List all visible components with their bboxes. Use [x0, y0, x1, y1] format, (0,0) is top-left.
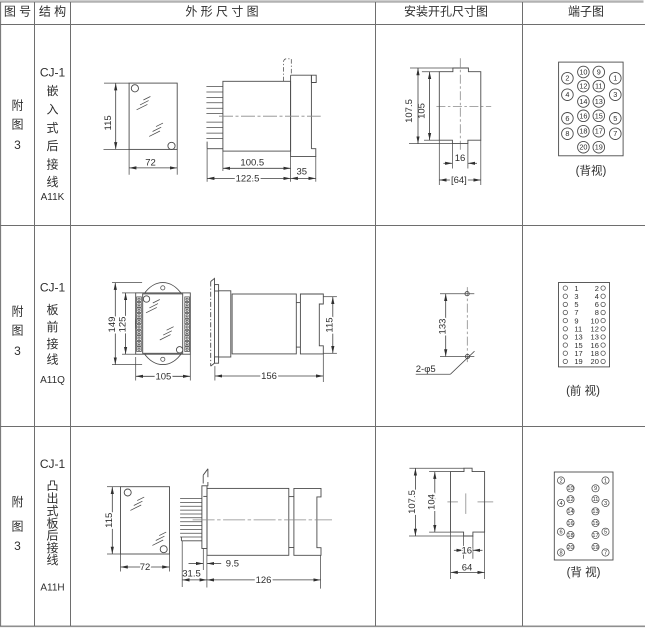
- svg-text:17: 17: [592, 533, 598, 539]
- svg-text:附: 附: [11, 495, 23, 509]
- svg-text:板: 板: [46, 303, 58, 317]
- svg-text:31.5: 31.5: [182, 569, 201, 580]
- svg-text:外 形 尺 寸 图: 外 形 尺 寸 图: [185, 5, 258, 19]
- svg-text:72: 72: [140, 562, 151, 573]
- svg-text:3: 3: [613, 90, 617, 99]
- svg-text:图: 图: [11, 118, 23, 132]
- svg-text:3: 3: [604, 501, 607, 507]
- svg-text:4: 4: [559, 501, 562, 507]
- svg-text:式: 式: [46, 121, 58, 135]
- svg-text:线: 线: [46, 553, 58, 567]
- svg-text:CJ-1: CJ-1: [40, 457, 66, 471]
- svg-text:A11Q: A11Q: [40, 375, 65, 386]
- svg-text:7: 7: [604, 550, 607, 556]
- svg-text:18: 18: [567, 533, 573, 539]
- svg-text:16: 16: [462, 545, 473, 556]
- svg-text:3: 3: [14, 138, 21, 152]
- svg-text:图: 图: [11, 323, 23, 337]
- svg-text:156: 156: [261, 371, 277, 382]
- svg-text:115: 115: [104, 513, 115, 528]
- svg-text:端子图: 端子图: [568, 5, 604, 19]
- svg-text:100.5: 100.5: [240, 158, 264, 169]
- svg-text:20: 20: [591, 357, 599, 366]
- svg-text:17: 17: [595, 127, 603, 136]
- svg-text:1: 1: [613, 74, 617, 83]
- svg-text:2: 2: [565, 74, 569, 83]
- svg-text:(前 视): (前 视): [566, 384, 600, 398]
- svg-text:11: 11: [595, 82, 603, 91]
- svg-text:20: 20: [567, 545, 573, 551]
- svg-text:16: 16: [455, 153, 466, 164]
- svg-text:(背 视): (背 视): [567, 565, 601, 579]
- svg-text:126: 126: [256, 575, 272, 586]
- svg-text:安装开孔尺寸图: 安装开孔尺寸图: [404, 4, 488, 19]
- svg-text:13: 13: [592, 509, 598, 515]
- svg-text:16: 16: [567, 521, 573, 527]
- svg-text:线: 线: [46, 353, 58, 367]
- svg-text:115: 115: [103, 115, 114, 130]
- svg-text:19: 19: [574, 357, 582, 366]
- svg-text:后: 后: [46, 139, 58, 153]
- svg-text:9: 9: [594, 486, 597, 492]
- svg-text:105: 105: [155, 371, 171, 382]
- svg-text:8: 8: [565, 129, 569, 138]
- svg-text:13: 13: [595, 97, 603, 106]
- svg-text:107.5: 107.5: [407, 490, 418, 514]
- svg-text:1: 1: [604, 478, 607, 484]
- svg-text:122.5: 122.5: [236, 173, 260, 184]
- svg-text:前: 前: [46, 319, 58, 334]
- svg-text:107.5: 107.5: [404, 99, 415, 123]
- svg-text:5: 5: [604, 530, 607, 536]
- svg-text:CJ-1: CJ-1: [40, 66, 66, 80]
- svg-text:5: 5: [613, 114, 617, 123]
- svg-text:2-φ5: 2-φ5: [416, 364, 436, 375]
- svg-text:3: 3: [14, 539, 21, 553]
- svg-text:15: 15: [595, 111, 603, 120]
- svg-text:15: 15: [592, 521, 598, 527]
- svg-text:16: 16: [579, 111, 587, 120]
- svg-text:(背视): (背视): [576, 164, 607, 178]
- svg-text:14: 14: [579, 97, 587, 106]
- svg-text:结 构: 结 构: [39, 4, 66, 19]
- svg-text:12: 12: [567, 497, 573, 503]
- svg-text:10: 10: [579, 68, 587, 77]
- svg-text:附: 附: [11, 304, 23, 318]
- svg-text:104: 104: [427, 494, 438, 510]
- svg-text:2: 2: [559, 478, 562, 484]
- svg-text:133: 133: [438, 319, 449, 335]
- svg-text:4: 4: [565, 90, 569, 99]
- svg-text:[64]: [64]: [451, 175, 467, 186]
- svg-text:19: 19: [595, 143, 603, 152]
- svg-text:18: 18: [579, 127, 587, 136]
- svg-text:8: 8: [559, 550, 562, 556]
- svg-text:72: 72: [145, 157, 156, 168]
- svg-text:接: 接: [46, 157, 58, 172]
- svg-text:接: 接: [46, 336, 58, 351]
- svg-text:A11H: A11H: [40, 583, 64, 594]
- svg-text:10: 10: [567, 486, 573, 492]
- svg-text:图: 图: [11, 519, 23, 533]
- svg-text:9.5: 9.5: [226, 559, 239, 570]
- svg-text:105: 105: [416, 103, 427, 119]
- svg-text:附: 附: [11, 99, 23, 113]
- svg-text:9: 9: [597, 68, 601, 77]
- svg-text:线: 线: [46, 175, 58, 189]
- svg-text:6: 6: [559, 530, 562, 536]
- svg-text:11: 11: [593, 497, 599, 503]
- svg-text:35: 35: [297, 166, 308, 177]
- svg-text:64: 64: [462, 562, 473, 573]
- svg-text:入: 入: [46, 103, 58, 117]
- svg-text:125: 125: [117, 317, 128, 333]
- svg-text:14: 14: [567, 509, 573, 515]
- svg-text:20: 20: [579, 143, 587, 152]
- svg-text:A11K: A11K: [41, 192, 65, 203]
- svg-text:7: 7: [613, 129, 617, 138]
- svg-text:19: 19: [592, 545, 598, 551]
- svg-text:115: 115: [325, 317, 336, 332]
- svg-text:CJ-1: CJ-1: [40, 281, 66, 295]
- svg-text:6: 6: [565, 114, 569, 123]
- svg-text:嵌: 嵌: [46, 84, 58, 98]
- svg-text:图 号: 图 号: [4, 5, 31, 19]
- svg-text:3: 3: [14, 344, 21, 358]
- svg-text:12: 12: [579, 82, 587, 91]
